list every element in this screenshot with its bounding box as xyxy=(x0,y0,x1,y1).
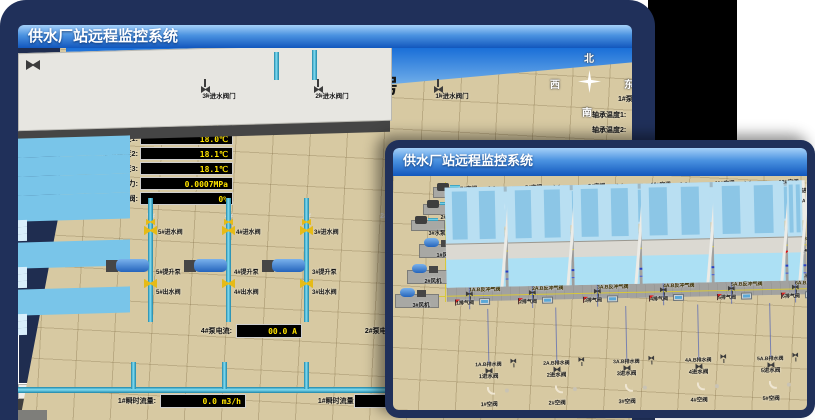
valve-box-base xyxy=(18,410,47,420)
blower-icon[interactable] xyxy=(412,264,427,273)
cell-trough xyxy=(721,186,740,234)
elbow-dot xyxy=(715,384,719,388)
drain-valve-label: 4A.B排水阀 xyxy=(675,358,721,364)
cell-trough xyxy=(681,186,700,234)
pump-current-label: 4#泵电流: xyxy=(184,328,232,335)
drain-valve-label: 1A.B排水阀 xyxy=(465,362,511,368)
riser-pipe xyxy=(274,52,279,80)
window1-title: 供水厂站远程监控系统 xyxy=(18,25,632,48)
filter-cell xyxy=(713,181,786,282)
cell-trough xyxy=(649,187,668,235)
panel-field-value: 18.1℃ xyxy=(140,147,233,160)
compass-south: 南 xyxy=(582,104,592,119)
valve-stem xyxy=(771,368,772,372)
water-seal-box xyxy=(741,292,752,299)
air-valve-label: 3#空阀 xyxy=(610,400,644,406)
pump-pipe xyxy=(428,218,438,221)
cell-trough xyxy=(479,191,495,239)
blower-motor xyxy=(429,266,438,273)
vent-valve-label: 5排气阀 xyxy=(712,296,742,302)
drain-valve-label: 2A.B排水阀 xyxy=(533,361,579,367)
panel-field-value: 18.1℃ xyxy=(140,162,233,175)
bay-outlet-valve-label: 3#出水阀 xyxy=(312,290,337,296)
bay-inlet-valve-label: 3#进水阀 xyxy=(314,230,339,236)
backwash-air-valve-label: 5A.B反冲气阀 xyxy=(724,282,770,288)
air-valve-label: 5#空阀 xyxy=(754,397,788,403)
filter-cell xyxy=(641,182,712,283)
valve-stem xyxy=(699,369,700,373)
riser-pipe xyxy=(312,50,317,80)
vent-valve-label: 6排气阀 xyxy=(776,294,806,300)
valve-stem xyxy=(489,374,490,378)
valve-stem xyxy=(557,372,558,376)
filter-pool-scene: 1#V滤池 1#水泵2#水泵3#水泵1#风机2#风机3#风机 7#空阀8#空阀9… xyxy=(393,176,807,410)
bay-pipe xyxy=(226,198,231,322)
bay-pipe xyxy=(304,198,309,322)
filter-cell xyxy=(573,184,640,285)
vent-valve-label: 1排气阀 xyxy=(450,301,480,307)
air-valve-label: 2#空阀 xyxy=(540,401,574,407)
bay-pipe xyxy=(148,198,153,322)
valve-stem xyxy=(723,359,724,363)
panel-field-value: 0.0007MPa xyxy=(140,177,233,190)
basin-tab xyxy=(18,328,27,335)
backwash-air-valve-label: 4A.B反冲气阀 xyxy=(656,283,702,289)
bay-outlet-valve-label: 5#出水阀 xyxy=(156,290,181,296)
outlet-branch-pipe xyxy=(131,362,136,389)
bay-outlet-valve-label: 4#出水阀 xyxy=(234,290,259,296)
window2-titlebar[interactable]: 供水厂站远程监控系统 xyxy=(393,148,807,176)
right-column-label: 轴承温度1: xyxy=(592,112,626,119)
filter-cell xyxy=(507,185,572,286)
air-valve-label: 4#空阀 xyxy=(682,398,716,404)
cell-trough xyxy=(754,185,773,233)
compass-east: 东 xyxy=(624,76,632,91)
bay-pump-label: 5#提升泵 xyxy=(156,270,181,276)
basin-tab xyxy=(18,234,27,241)
water-seal-box xyxy=(673,294,684,301)
vent-valve-label: 3排气阀 xyxy=(578,298,608,304)
cell-trough xyxy=(610,188,628,236)
elbow-dot xyxy=(643,386,647,390)
backwash-air-valve-label: 6A.B反冲气阀 xyxy=(788,281,807,287)
cell-trough xyxy=(795,184,800,232)
cell-trough xyxy=(452,191,468,239)
panel-field-value: 0% xyxy=(140,192,233,205)
blower-motor xyxy=(417,290,426,297)
water-seal-box xyxy=(607,295,618,302)
valve-stem xyxy=(204,79,206,87)
bay-pump-label: 4#提升泵 xyxy=(234,270,259,276)
water-seal-box xyxy=(479,298,490,305)
filter-grid: 7#空阀8#空阀9#空阀10#空阀11#空阀12#空阀7进水阀8进水阀9进水阀1… xyxy=(445,180,807,410)
outlet-branch-pipe xyxy=(304,362,309,389)
cell-trough xyxy=(543,189,560,237)
vent-valve-label: 4排气阀 xyxy=(644,297,674,303)
compass-west: 西 xyxy=(550,76,560,91)
screenshot-root: 供水厂站远程监控系统 取水泵房 5#泵轴承温度1:100.0℃轴承温度2:100… xyxy=(0,0,815,420)
pump-icon[interactable] xyxy=(415,216,427,224)
basin-tab xyxy=(18,281,27,288)
cell-lower-water xyxy=(642,254,712,283)
bay-inlet-valve-label: 4#进水阀 xyxy=(236,230,261,236)
cell-lower-water xyxy=(714,253,786,282)
backwash-air-valve-label: 1A.B反冲气阀 xyxy=(462,287,508,293)
cell-trough xyxy=(581,189,599,237)
pump-icon[interactable] xyxy=(194,259,227,272)
inlet-valve-label: 1#进水阀门 xyxy=(427,94,477,101)
valve-stem xyxy=(581,362,582,366)
bay-inlet-valve-label: 5#进水阀 xyxy=(158,230,183,236)
vent-valve-label: 2排气阀 xyxy=(513,300,543,306)
valve-stem xyxy=(317,79,319,87)
cell-lower-water xyxy=(446,259,506,288)
valve-stem xyxy=(627,371,628,375)
inlet-valve-label: 2#进水阀门 xyxy=(307,94,357,101)
valve-stem xyxy=(437,79,439,87)
cell-trough xyxy=(788,185,793,233)
backwash-air-valve-label: 3A.B反冲气阀 xyxy=(590,285,636,291)
elbow-dot xyxy=(573,387,577,391)
window2-title: 供水厂站远程监控系统 xyxy=(393,148,807,174)
window1-titlebar[interactable]: 供水厂站远程监控系统 xyxy=(18,25,632,48)
valve-stem xyxy=(795,357,796,361)
drain-valve-label: 3A.B排水阀 xyxy=(603,360,649,366)
outlet-branch-pipe xyxy=(222,362,227,389)
pump-icon[interactable] xyxy=(272,259,305,272)
water-seal-box xyxy=(542,297,553,304)
elbow-dot xyxy=(505,388,509,392)
valve-stem xyxy=(513,363,514,367)
blower-icon[interactable] xyxy=(400,288,415,297)
flow-label: 1#瞬时流量: xyxy=(94,398,156,405)
pump-icon[interactable] xyxy=(427,200,439,208)
bay-pump-label: 3#提升泵 xyxy=(312,270,337,276)
filter-cell xyxy=(445,187,506,288)
compass-line-v xyxy=(18,335,19,383)
cell-lower-water xyxy=(574,256,640,285)
pump-icon[interactable] xyxy=(116,259,149,272)
window-filter-pool: 供水厂站远程监控系统 1#V滤池 1#水泵2#水泵3#水泵1#风机2#风机3#风… xyxy=(385,140,815,418)
blower-icon[interactable] xyxy=(424,238,439,247)
right-column-label: 轴承温度2: xyxy=(592,127,626,134)
compass-north: 北 xyxy=(584,50,594,65)
backwash-air-valve-label: 2A.B反冲气阀 xyxy=(525,286,571,292)
drain-valve-label: 5A.B排水阀 xyxy=(747,357,793,363)
basin-water-cell xyxy=(18,286,130,315)
elbow-dot xyxy=(787,383,791,387)
right-column-header: 1#泵 xyxy=(618,96,632,103)
flow-value: 0.0 m3/h xyxy=(160,394,246,408)
background-black-patch xyxy=(648,0,737,142)
cell-trough xyxy=(514,190,531,238)
valve-stem xyxy=(651,360,652,364)
air-valve-label: 1#空阀 xyxy=(472,403,506,409)
equipment-label: 3#风机 xyxy=(401,304,441,310)
basin-water-cell xyxy=(18,192,130,221)
cell-lower-water xyxy=(508,257,572,286)
flow-label: 1#瞬时流量: xyxy=(294,398,356,405)
pump-current-value: 00.0 A xyxy=(236,324,302,338)
inlet-valve-label: 3#进水阀门 xyxy=(194,94,244,101)
